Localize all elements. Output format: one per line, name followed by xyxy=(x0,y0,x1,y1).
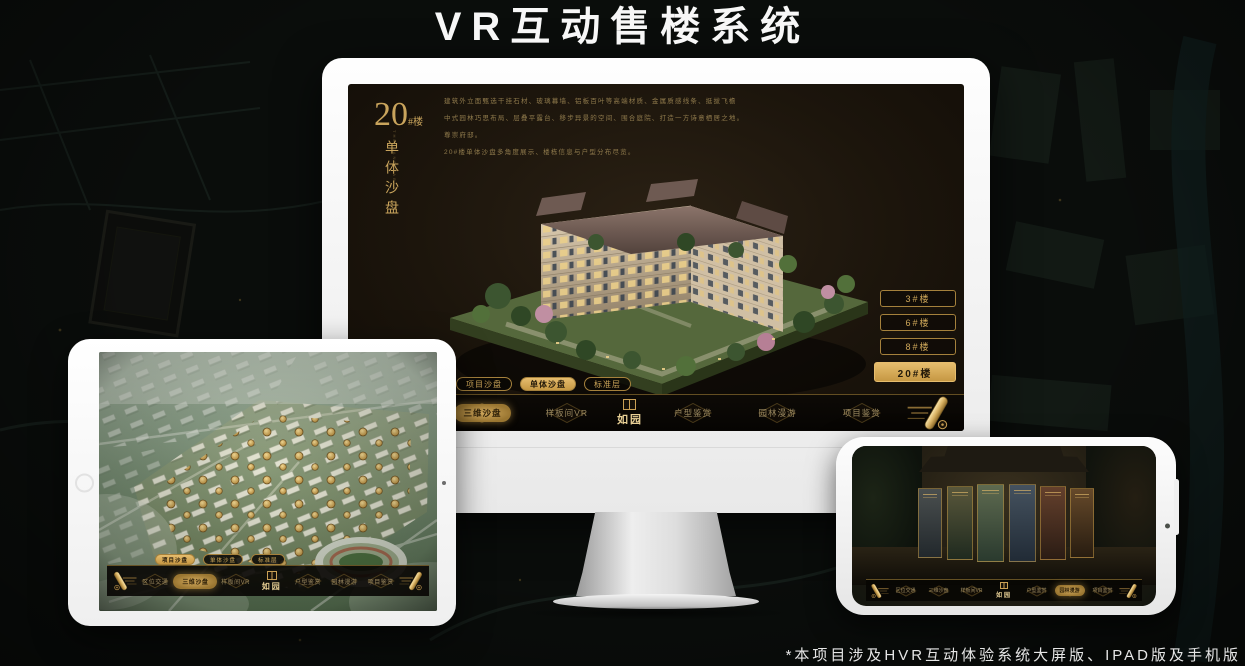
brand-logo: 如园 xyxy=(988,582,1020,599)
description-line: 尊崇府邸。 xyxy=(444,130,780,141)
gate-silhouette xyxy=(919,446,1089,472)
floor-button[interactable]: 3#楼 xyxy=(880,290,956,307)
panorama-panel[interactable] xyxy=(918,488,942,558)
building-3d-viewport[interactable] xyxy=(436,146,880,408)
panorama-panel[interactable] xyxy=(977,484,1004,562)
ipad-tablet: 项目沙盘 单体沙盘 标准层 区位交通 三维沙盘 样板间VR xyxy=(68,339,456,626)
tablet-screen: 项目沙盘 单体沙盘 标准层 区位交通 三维沙盘 样板间VR xyxy=(99,352,437,611)
phone-navbar: 区位交通 三维沙盘 样板间VR 如园 户型鉴赏 xyxy=(866,579,1142,601)
floor-buttons-group: 3#楼 6#楼 8#楼 20#楼 xyxy=(874,290,956,382)
side-button[interactable] xyxy=(1174,479,1179,535)
nav-item[interactable]: 样板间VR xyxy=(955,580,988,601)
brand-logo: 如园 xyxy=(609,399,651,427)
nav-item[interactable]: 园林漫游 xyxy=(735,395,819,431)
nav-item[interactable]: 户型鉴赏 xyxy=(1020,580,1053,601)
camera-dot xyxy=(1165,524,1170,529)
seal-icon xyxy=(1000,582,1008,589)
scroll-icon[interactable] xyxy=(399,570,425,592)
description-line: 建筑外立面甄选干挂石材、玻璃幕墙、铝板百叶等高端材质、金属质感线条、挺拔飞檐 xyxy=(444,96,780,107)
stage: VR互动售楼系统 20#楼 单体沙盘 THE SAND TABLE 建筑外立面甄… xyxy=(0,0,1245,666)
page-title: VR互动售楼系统 xyxy=(0,0,1245,54)
subtab-group: 项目沙盘 单体沙盘 标准层 xyxy=(456,377,631,391)
tablet-subtab-group: 项目沙盘 单体沙盘 标准层 xyxy=(155,554,285,565)
camera-dot xyxy=(442,481,446,485)
nav-item[interactable]: 项目鉴赏 xyxy=(363,566,399,596)
nav-item[interactable]: 园林漫游 xyxy=(326,566,362,596)
nav-item[interactable]: 园林漫游 xyxy=(1053,580,1086,601)
monitor-shadow xyxy=(516,606,796,620)
tablet-navbar: 区位交通 三维沙盘 样板间VR 如园 户型鉴赏 xyxy=(107,565,429,596)
subtab[interactable]: 标准层 xyxy=(251,554,285,565)
nav-item[interactable]: 三维沙盘 xyxy=(173,566,217,596)
brand-logo: 如园 xyxy=(254,571,290,592)
subtab[interactable]: 项目沙盘 xyxy=(155,554,195,565)
scroll-icon[interactable] xyxy=(1119,583,1139,599)
panorama-panel[interactable] xyxy=(1070,488,1094,558)
nav-item[interactable]: 区位交通 xyxy=(137,566,173,596)
floor-button[interactable]: 6#楼 xyxy=(880,314,956,331)
floor-button[interactable]: 8#楼 xyxy=(880,338,956,355)
nav-item[interactable]: 样板间VR xyxy=(525,395,609,431)
seal-icon xyxy=(623,399,636,410)
nav-item[interactable]: 样板间VR xyxy=(217,566,253,596)
monitor-stand xyxy=(576,512,736,596)
home-button[interactable] xyxy=(75,473,94,492)
building-title: 20#楼 单体沙盘 xyxy=(374,98,423,258)
description-line: 中式园林巧思布局、层叠平露台、移步异景的空间、围合庭院、打造一方诗意栖居之地。 xyxy=(444,113,780,124)
subtab[interactable]: 单体沙盘 xyxy=(203,554,243,565)
building-number: 20 xyxy=(374,96,408,133)
floor-button[interactable]: 20#楼 xyxy=(874,362,956,382)
nav-item[interactable]: 项目鉴赏 xyxy=(820,395,904,431)
subtab[interactable]: 标准层 xyxy=(584,377,631,391)
scroll-icon[interactable] xyxy=(869,583,889,599)
panorama-panel[interactable] xyxy=(1040,486,1066,560)
nav-item[interactable]: 三维沙盘 xyxy=(922,580,955,601)
subtab[interactable]: 单体沙盘 xyxy=(520,377,576,391)
scroll-icon[interactable] xyxy=(111,570,137,592)
seal-icon xyxy=(267,571,277,580)
nav-item[interactable]: 户型鉴赏 xyxy=(290,566,326,596)
phone-screen: 区位交通 三维沙盘 样板间VR 如园 户型鉴赏 xyxy=(852,446,1156,606)
panorama-panel[interactable] xyxy=(1009,484,1036,562)
scroll-icon[interactable] xyxy=(904,396,956,430)
nav-item[interactable]: 户型鉴赏 xyxy=(651,395,735,431)
building-subtitle: 单体沙盘 xyxy=(380,140,400,258)
building-number-suffix: #楼 xyxy=(408,117,423,128)
subtab[interactable]: 项目沙盘 xyxy=(456,377,512,391)
building-subtitle-en: THE SAND TABLE xyxy=(392,130,397,220)
iphone-device: 区位交通 三维沙盘 样板间VR 如园 户型鉴赏 xyxy=(836,437,1176,615)
nav-item[interactable]: 项目鉴赏 xyxy=(1086,580,1119,601)
panorama-panel[interactable] xyxy=(947,486,973,560)
nav-item[interactable]: 区位交通 xyxy=(889,580,922,601)
footnote: *本项目涉及HVR互动体验系统大屏版、IPAD版及手机版 xyxy=(786,644,1241,665)
